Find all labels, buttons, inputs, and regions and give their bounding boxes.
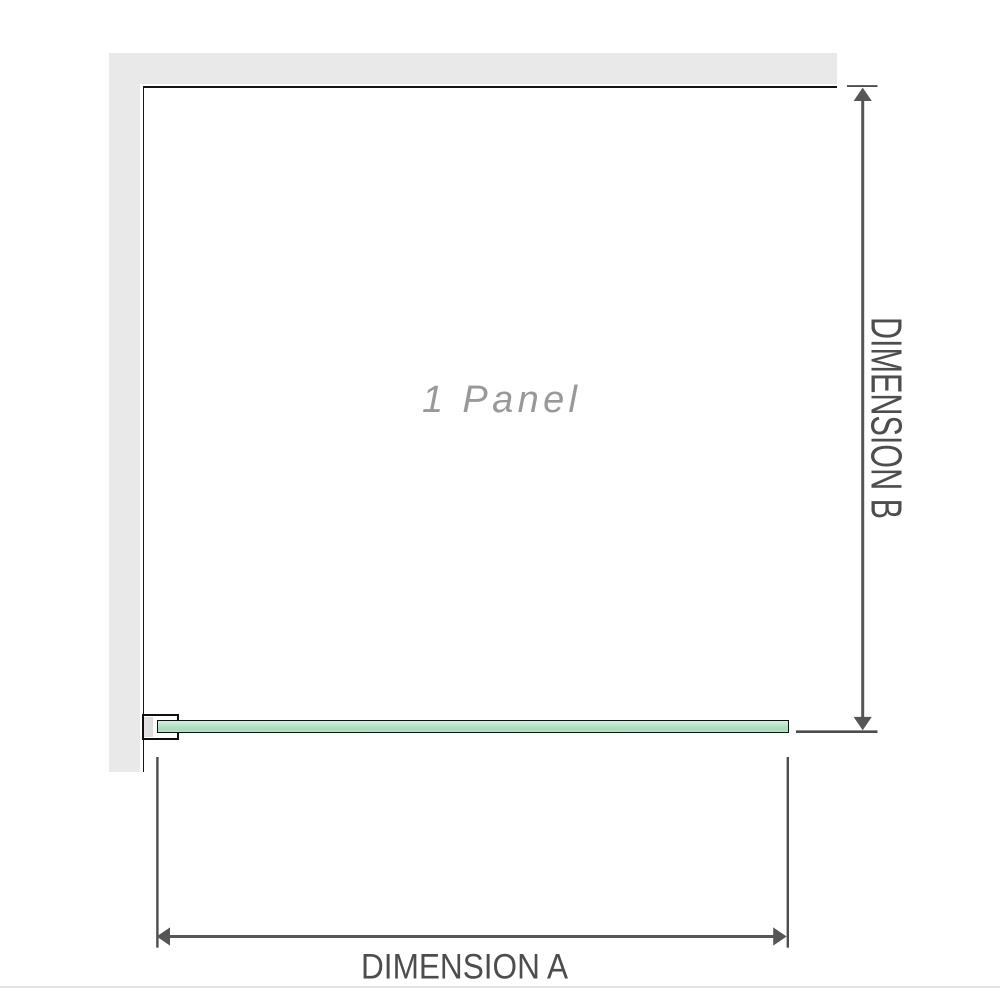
svg-text:DIMENSION A: DIMENSION A [361,947,569,986]
svg-text:DIMENSION B: DIMENSION B [861,317,910,519]
svg-text:1 Panel: 1 Panel [422,379,579,421]
